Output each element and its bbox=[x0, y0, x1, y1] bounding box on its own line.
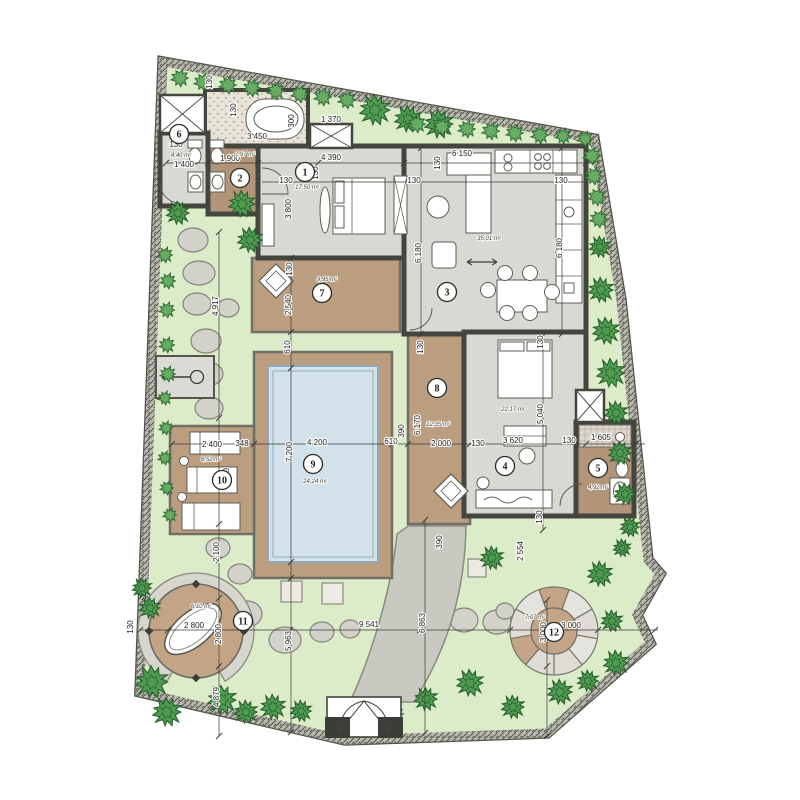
bath2-cistern bbox=[210, 140, 224, 148]
floor-plan-canvas: 1301 4001 9001301303 4503001 3704 390130… bbox=[0, 0, 800, 800]
side-table bbox=[178, 493, 187, 502]
sun-lounger bbox=[182, 503, 240, 530]
wc6-sink bbox=[190, 175, 201, 189]
room-number: 7 bbox=[320, 288, 325, 299]
dimension-label: 130 bbox=[416, 340, 425, 354]
dimension-label: 2 800 bbox=[214, 623, 223, 644]
room-area-label: 9,95 m² bbox=[317, 277, 338, 283]
shower-drain-icon bbox=[616, 433, 625, 442]
dimension-label: 2 540 bbox=[284, 294, 293, 315]
stepping-stone bbox=[178, 228, 208, 252]
dimension-label: 3 450 bbox=[247, 132, 268, 141]
stepping-stone bbox=[228, 564, 252, 584]
dimension-label: 6 180 bbox=[414, 242, 423, 263]
dimension-label: 4 200 bbox=[307, 438, 328, 447]
room-number: 5 bbox=[596, 463, 601, 474]
room-number: 4 bbox=[503, 461, 508, 472]
dimension-label: 3 800 bbox=[284, 198, 293, 219]
dining-chair bbox=[545, 285, 560, 300]
oven-icon bbox=[564, 207, 574, 217]
stepping-stone bbox=[496, 603, 514, 619]
room-number: 12 bbox=[549, 627, 559, 638]
dimension-label: 3 620 bbox=[503, 436, 524, 445]
dimension-label: 1 400 bbox=[174, 160, 195, 169]
dimension-label: 130 bbox=[536, 335, 545, 349]
dimension-label: 130 bbox=[433, 156, 442, 170]
dimension-label: 6 150 bbox=[452, 149, 473, 158]
dimension-label: 2 100 bbox=[212, 541, 221, 562]
layer-gate bbox=[325, 697, 403, 738]
gate-post bbox=[378, 717, 403, 738]
stove-burner bbox=[544, 163, 551, 170]
room-number: 1 bbox=[303, 167, 308, 178]
armchair bbox=[432, 242, 456, 268]
paver-square bbox=[322, 583, 343, 604]
bedroom1-rug bbox=[320, 187, 330, 233]
site-plan-drawing: 1301 4001 9001301303 4503001 3704 390130… bbox=[0, 0, 800, 800]
room-number: 3 bbox=[445, 287, 450, 298]
room-number: 10 bbox=[217, 475, 227, 486]
dimension-label: 1 370 bbox=[321, 115, 342, 124]
dimension-label: 6 170 bbox=[413, 414, 422, 435]
stepping-stone bbox=[183, 293, 211, 315]
dimension-label: 130 bbox=[279, 176, 293, 185]
dimension-label: 4 390 bbox=[321, 153, 342, 162]
paver-square bbox=[281, 581, 302, 602]
dimension-label: 3 000 bbox=[561, 621, 582, 630]
kitchen-sink-bowl bbox=[504, 154, 512, 162]
dimension-label: 1 605 bbox=[591, 433, 612, 442]
room-number: 8 bbox=[435, 383, 440, 394]
dimension-label: 2 800 bbox=[184, 621, 205, 630]
room-number: 9 bbox=[311, 459, 316, 470]
stove-burner bbox=[535, 154, 542, 161]
dimension-label: 130 bbox=[229, 103, 238, 117]
dimension-label: 610 bbox=[283, 340, 292, 354]
dining-chair bbox=[523, 266, 538, 281]
bedroom1-pillow bbox=[335, 181, 344, 203]
gate-post bbox=[325, 717, 350, 738]
wc6-cistern bbox=[188, 140, 202, 148]
dimension-label: 130 bbox=[554, 176, 568, 185]
stepping-stone bbox=[217, 299, 239, 317]
dimension-label: 610 bbox=[384, 437, 398, 446]
coffee-table bbox=[427, 196, 449, 218]
room-area-label: 22,17 m² bbox=[500, 407, 526, 413]
dining-chair bbox=[481, 283, 496, 298]
room-area-label: 35,01 m² bbox=[477, 236, 502, 242]
room-area-label: 4,40 m² bbox=[171, 153, 192, 159]
dimension-label: 130 bbox=[535, 510, 544, 524]
stove-burner bbox=[544, 154, 551, 161]
room-number: 6 bbox=[177, 129, 182, 140]
room-number: 2 bbox=[238, 173, 243, 184]
stepping-stone bbox=[183, 261, 215, 285]
dimension-label: 7 200 bbox=[285, 441, 294, 462]
appliance-icon bbox=[564, 283, 574, 293]
bedroom4-console bbox=[476, 490, 552, 508]
dimension-label: 6 180 bbox=[555, 237, 564, 258]
dimension-label: 6 863 bbox=[418, 612, 427, 633]
dining-chair bbox=[498, 266, 513, 281]
dimension-label: 5 963 bbox=[284, 630, 293, 651]
dimension-label: 2 000 bbox=[431, 439, 452, 448]
dimension-label: 4 879 bbox=[212, 686, 221, 707]
room-area-label: 24,24 m² bbox=[302, 479, 328, 485]
dimension-label: 390 bbox=[435, 535, 444, 549]
dimension-label: 130 bbox=[126, 620, 135, 634]
room-area-label: 12,35 m² bbox=[426, 422, 451, 428]
bedroom4-pillow bbox=[500, 342, 524, 351]
dimension-label: 390 bbox=[397, 424, 406, 438]
bedroom1-pillow bbox=[335, 206, 344, 228]
stove-burner bbox=[535, 163, 542, 170]
room-area-label: 7,07 m² bbox=[525, 615, 546, 621]
dimension-label: 130 bbox=[205, 75, 214, 89]
room-area-label: 8,52 m² bbox=[201, 457, 222, 463]
kitchen-sink-bowl bbox=[504, 163, 512, 171]
dimension-label: 130 bbox=[471, 439, 485, 448]
bedroom1-cabinet bbox=[262, 204, 274, 246]
room-area-label: 17,50 m² bbox=[295, 185, 320, 191]
bedroom4-lamp bbox=[477, 477, 489, 489]
room-number: 11 bbox=[238, 616, 247, 627]
stepping-stone bbox=[310, 622, 334, 642]
stepping-stone bbox=[191, 329, 221, 353]
side-table bbox=[180, 457, 189, 466]
sofa-side-section bbox=[466, 175, 491, 233]
dimension-label: 130 bbox=[285, 262, 294, 276]
dimension-label: 4 917 bbox=[211, 295, 220, 316]
dimension-label: 130 bbox=[407, 176, 421, 185]
stepping-stone bbox=[340, 620, 360, 638]
dimension-label: 9 541 bbox=[359, 620, 380, 629]
dimension-label: 2 554 bbox=[516, 540, 525, 561]
dimension-label: 2 400 bbox=[202, 440, 223, 449]
dimension-label: 130 bbox=[562, 436, 576, 445]
bedroom4-stool bbox=[519, 448, 535, 464]
room-area-label: 6,10 m² bbox=[191, 604, 212, 610]
dimension-label: 300 bbox=[287, 114, 296, 128]
dimension-label: 5 040 bbox=[536, 403, 545, 424]
dining-chair bbox=[523, 306, 538, 321]
bath2-sink bbox=[212, 175, 223, 189]
dimension-label: 348 bbox=[235, 439, 249, 448]
dining-chair bbox=[500, 306, 515, 321]
room-area-label: 4,92 m² bbox=[588, 485, 609, 491]
room-area-label: 7,97 m² bbox=[235, 152, 256, 158]
